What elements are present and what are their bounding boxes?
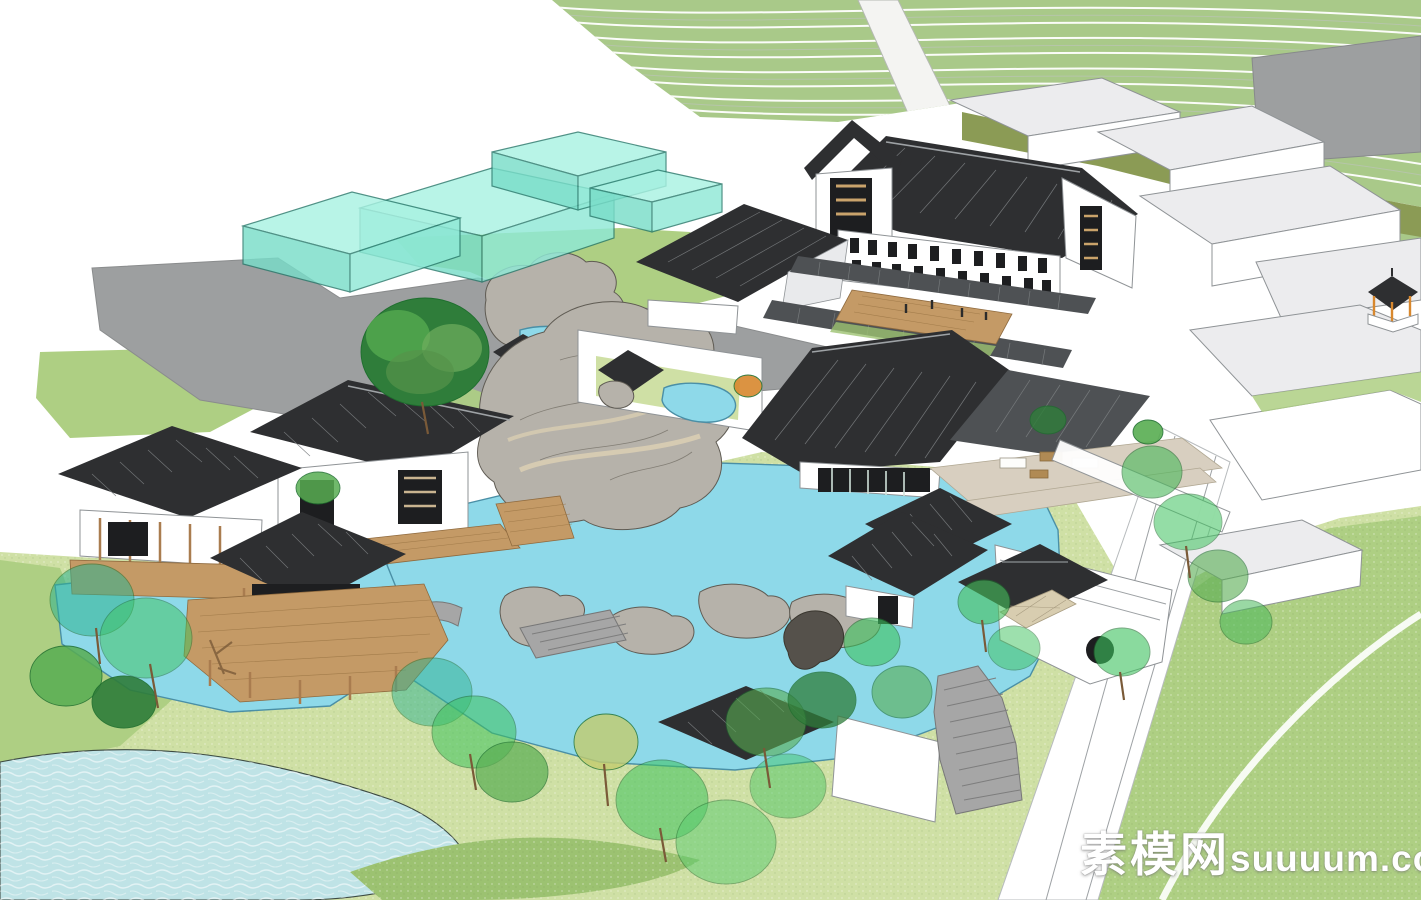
watermark: 素模网suuuum.com <box>1080 816 1421 885</box>
orange-shrub <box>734 375 762 397</box>
watermark-site-name: 素模网 <box>1080 816 1230 885</box>
watermark-domain: suuuum.com <box>1230 838 1421 880</box>
architectural-rendering: 素模网suuuum.com <box>0 0 1421 900</box>
scene-canvas <box>0 0 1421 900</box>
